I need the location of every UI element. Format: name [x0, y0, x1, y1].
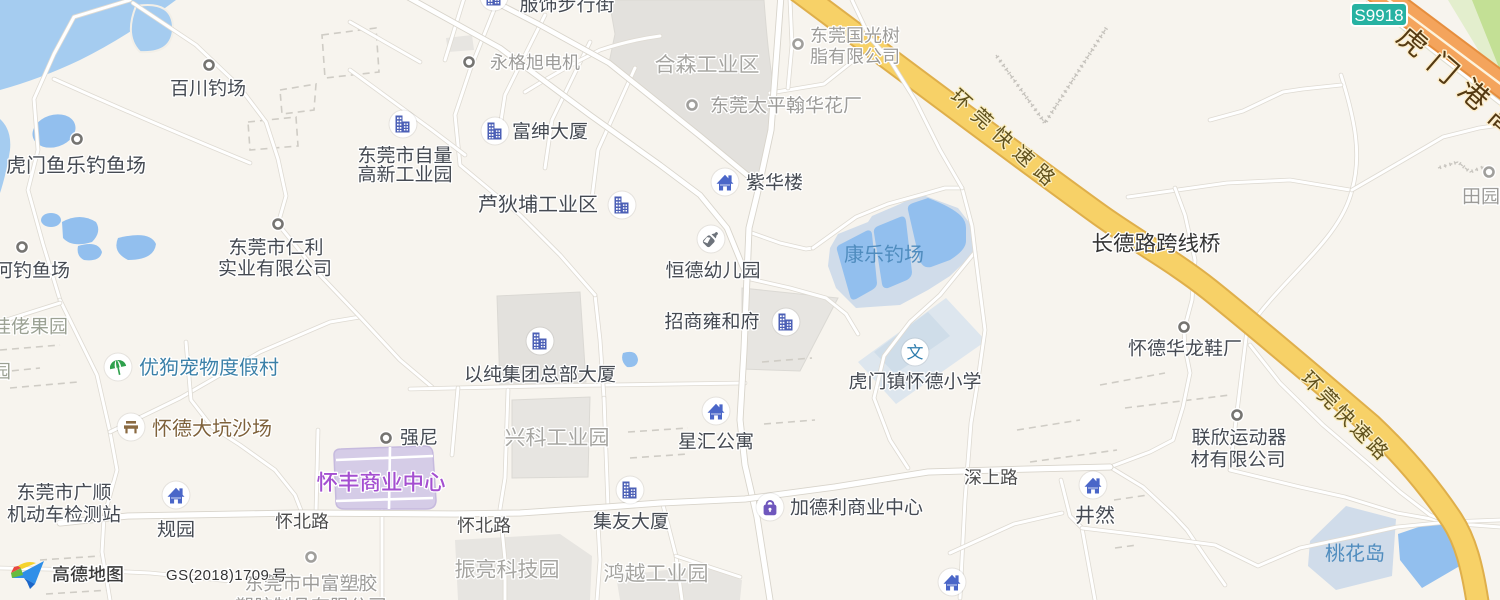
svg-text:S9918: S9918 — [1354, 6, 1403, 25]
svg-text:GS(2018)1709: GS(2018)1709 — [166, 567, 269, 584]
